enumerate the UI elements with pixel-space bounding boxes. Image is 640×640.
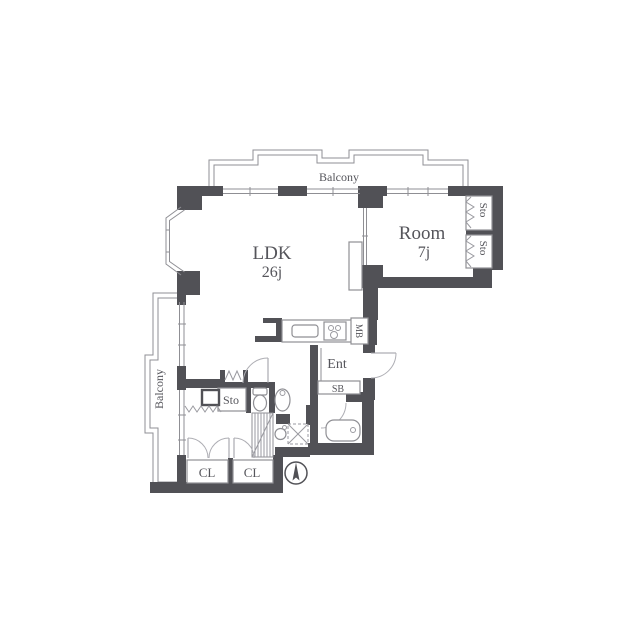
left-balcony: Balcony xyxy=(145,293,177,487)
cabinet xyxy=(202,390,219,405)
floor-plan-svg: Balcony Balcony xyxy=(0,0,640,640)
accordion-door xyxy=(185,406,221,412)
laundry-sink xyxy=(275,429,286,440)
entrance-door xyxy=(371,353,396,378)
sto-right-top-label: Sto xyxy=(477,203,489,218)
closet-left-label: CL xyxy=(199,465,216,480)
ldk-size-label: 26j xyxy=(262,264,282,281)
kitchen: MB xyxy=(282,318,368,344)
toilet-bowl xyxy=(254,395,267,411)
top-balcony-label: Balcony xyxy=(319,170,359,184)
closet-doors xyxy=(188,438,254,458)
room-label: Room xyxy=(399,223,446,244)
bathroom xyxy=(321,403,360,441)
stove xyxy=(324,322,346,340)
room-size-label: 7j xyxy=(418,244,430,261)
floor-plan-page: Balcony Balcony xyxy=(0,0,640,640)
entrance: Ent SB xyxy=(318,348,396,395)
washbasin xyxy=(275,389,290,411)
bathtub xyxy=(326,420,360,441)
closet-right-label: CL xyxy=(244,465,261,480)
entrance-label: Ent xyxy=(327,357,347,372)
toilet-room xyxy=(253,388,267,411)
left-balcony-label: Balcony xyxy=(152,369,166,409)
accordion-door xyxy=(225,371,241,380)
bay-window xyxy=(166,207,185,275)
top-balcony: Balcony xyxy=(209,150,468,188)
step-strip xyxy=(252,413,273,457)
shoe-box-label: SB xyxy=(332,384,345,395)
toilet-tank xyxy=(253,388,267,395)
ldk-label: LDK xyxy=(252,243,291,264)
sto-right-bottom-label: Sto xyxy=(477,241,489,256)
kitchen-sink xyxy=(292,325,318,337)
north-arrow-icon xyxy=(285,462,307,484)
meter-box-label: MB xyxy=(354,324,364,338)
storage-mid-label: Sto xyxy=(223,393,239,407)
